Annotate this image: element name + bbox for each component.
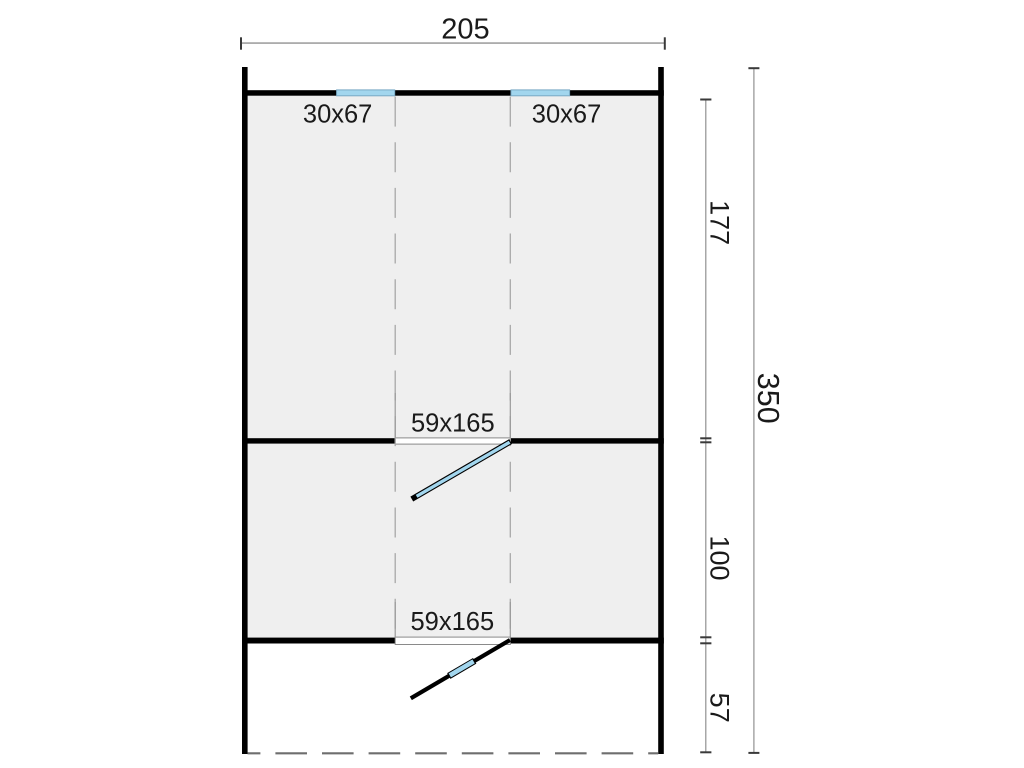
svg-text:59x165: 59x165 bbox=[411, 409, 495, 437]
svg-text:205: 205 bbox=[441, 14, 489, 46]
svg-text:30x67: 30x67 bbox=[303, 100, 372, 128]
svg-text:350: 350 bbox=[751, 373, 785, 424]
svg-text:57: 57 bbox=[705, 693, 735, 723]
svg-text:100: 100 bbox=[705, 535, 735, 580]
svg-text:59x165: 59x165 bbox=[411, 608, 495, 636]
svg-text:30x67: 30x67 bbox=[532, 100, 601, 128]
svg-text:177: 177 bbox=[705, 200, 735, 245]
